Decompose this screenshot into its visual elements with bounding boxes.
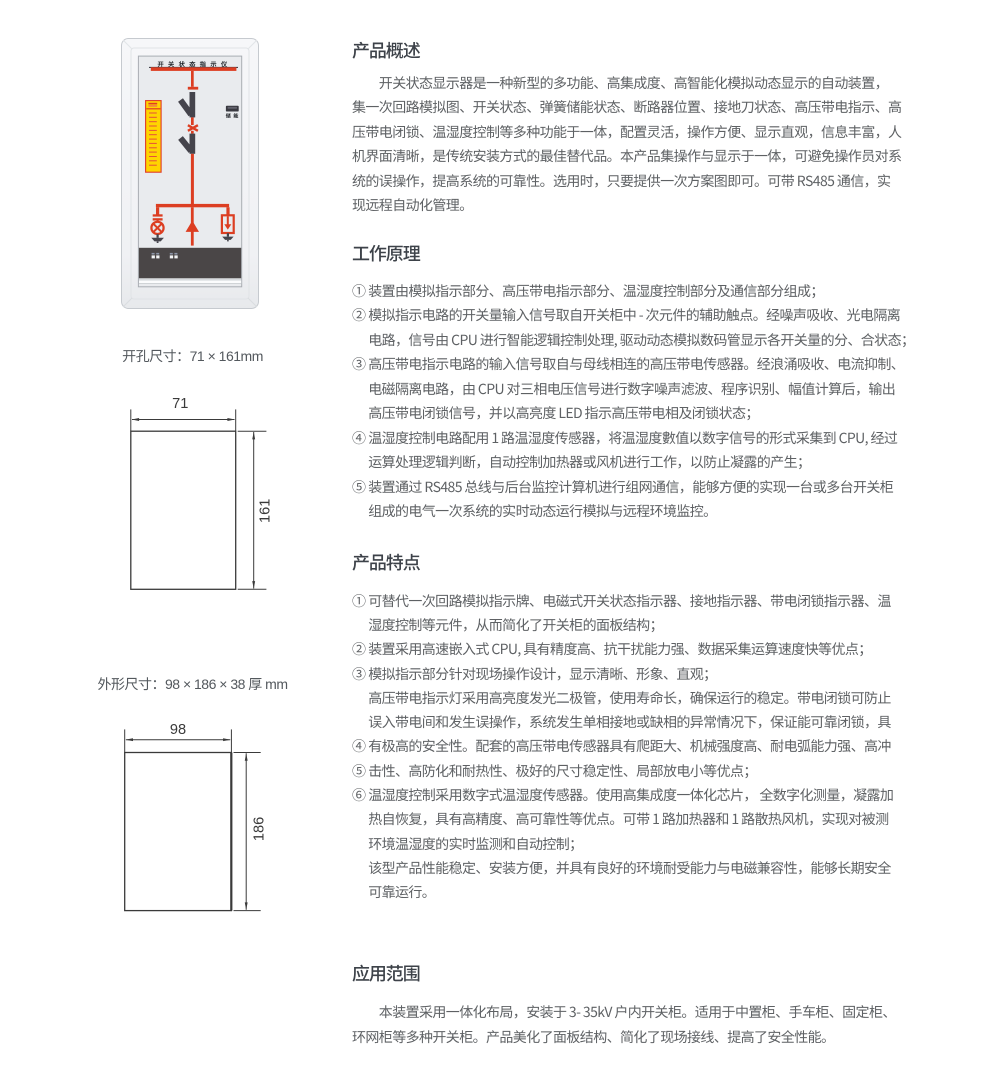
svg-text:98: 98 [170, 722, 186, 738]
svg-text:186: 186 [252, 817, 268, 841]
svg-text:161: 161 [258, 499, 274, 523]
svg-text:储能: 储能 [225, 112, 241, 119]
svg-text:71: 71 [172, 396, 188, 412]
